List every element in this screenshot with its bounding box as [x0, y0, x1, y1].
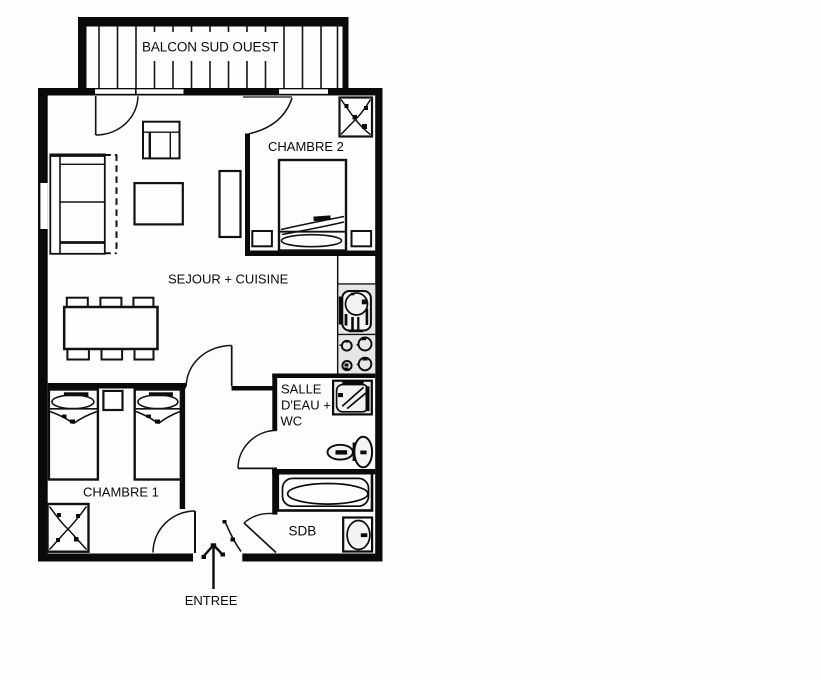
svg-text:WC: WC — [281, 414, 303, 429]
svg-text:SDB: SDB — [289, 524, 317, 539]
svg-text:CHAMBRE 1: CHAMBRE 1 — [83, 484, 159, 499]
svg-text:D'EAU +: D'EAU + — [281, 397, 331, 412]
svg-text:SALLE: SALLE — [281, 382, 322, 397]
svg-text:CHAMBRE 2: CHAMBRE 2 — [268, 139, 344, 154]
svg-text:SEJOUR + CUISINE: SEJOUR + CUISINE — [168, 271, 289, 286]
svg-text:BALCON SUD OUEST: BALCON SUD OUEST — [142, 40, 278, 55]
svg-text:ENTREE: ENTREE — [185, 593, 238, 608]
